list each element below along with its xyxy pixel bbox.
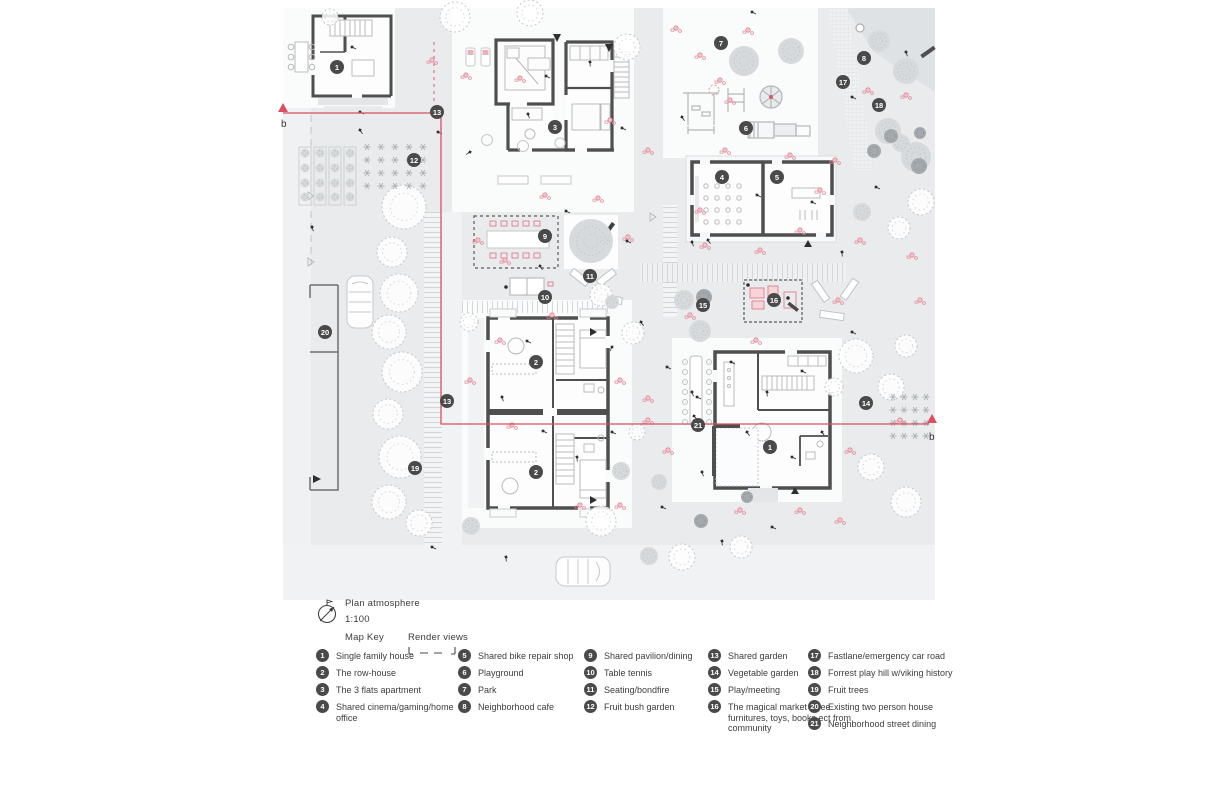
- svg-text:9: 9: [543, 232, 547, 241]
- plan-title: Plan atmosphere: [345, 598, 420, 609]
- svg-text:14: 14: [862, 399, 871, 408]
- plan-marker: 7: [714, 36, 728, 50]
- legend-item-label: Shared bike repair shop: [478, 649, 574, 662]
- legend-item: 1Single family house: [316, 649, 462, 662]
- svg-text:13: 13: [433, 108, 441, 117]
- render-views-label: Render views: [408, 632, 468, 643]
- legend-item: 9Shared pavilion/dining: [584, 649, 693, 662]
- legend-item-label: Fruit bush garden: [604, 700, 675, 713]
- legend-item: 7Park: [458, 683, 574, 696]
- plan-marker: 2: [529, 465, 543, 479]
- plan-marker: 21: [691, 418, 705, 432]
- legend-item-number: 12: [584, 700, 597, 713]
- plan-marker: 2: [529, 355, 543, 369]
- plan-marker: 1: [330, 60, 344, 74]
- legend-item-number: 16: [708, 700, 721, 713]
- legend-column: 9Shared pavilion/dining10Table tennis11S…: [584, 649, 693, 717]
- site-plan-sheet: b b 137817186451213911101516202213141921…: [0, 0, 1228, 780]
- building-cinema-bike: [686, 156, 836, 247]
- legend-item: 6Playground: [458, 666, 574, 679]
- plan-marker: 14: [859, 396, 873, 410]
- legend-column: 17Fastlane/emergency car road18Forrest p…: [808, 649, 953, 734]
- parked-car: [347, 276, 373, 328]
- legend-item-label: Park: [478, 683, 497, 696]
- legend-item-number: 2: [316, 666, 329, 679]
- plan-marker: 19: [408, 461, 422, 475]
- legend-column: 1Single family house2The row-house3The 3…: [316, 649, 462, 727]
- legend-item-label: Forrest play hill w/viking history: [828, 666, 953, 679]
- legend-item-number: 8: [458, 700, 471, 713]
- legend-item: 12Fruit bush garden: [584, 700, 693, 713]
- plan-marker: 8: [857, 51, 871, 65]
- building-rowhouse: [468, 309, 611, 517]
- section-label-right: b: [929, 432, 935, 443]
- legend-item-number: 9: [584, 649, 597, 662]
- plan-marker: 16: [767, 293, 781, 307]
- plan-marker: 10: [538, 290, 552, 304]
- svg-text:2: 2: [534, 468, 538, 477]
- plan-marker: 4: [715, 170, 729, 184]
- plan-marker: 5: [770, 170, 784, 184]
- legend-item: 11Seating/bondfire: [584, 683, 693, 696]
- legend-item-label: The row-house: [336, 666, 396, 679]
- legend-item-label: Neighborhood cafe: [478, 700, 554, 713]
- plan-marker: 13: [440, 394, 454, 408]
- legend-column: 5Shared bike repair shop6Playground7Park…: [458, 649, 574, 717]
- legend-item-number: 14: [708, 666, 721, 679]
- legend-item: 10Table tennis: [584, 666, 693, 679]
- legend-item-label: Shared cinema/gaming/home office: [336, 700, 462, 723]
- legend-item-number: 20: [808, 700, 821, 713]
- svg-text:12: 12: [410, 156, 418, 165]
- svg-text:8: 8: [862, 54, 866, 63]
- legend-item-label: Single family house: [336, 649, 414, 662]
- legend-item-label: Seating/bondfire: [604, 683, 670, 696]
- plan-marker: 9: [538, 229, 552, 243]
- legend-item-number: 1: [316, 649, 329, 662]
- legend-item-number: 15: [708, 683, 721, 696]
- plan-marker: 6: [739, 121, 753, 135]
- legend-item-number: 11: [584, 683, 597, 696]
- plan-scale: 1:100: [345, 614, 370, 625]
- svg-text:20: 20: [321, 328, 329, 337]
- legend-item-number: 7: [458, 683, 471, 696]
- plan-marker: 17: [836, 75, 850, 89]
- svg-text:7: 7: [719, 39, 723, 48]
- svg-text:15: 15: [699, 301, 707, 310]
- legend-item-number: 21: [808, 717, 821, 730]
- plan-marker: 13: [430, 105, 444, 119]
- legend-item-label: Fruit trees: [828, 683, 869, 696]
- svg-text:3: 3: [553, 123, 557, 132]
- legend-item-label: Vegetable garden: [728, 666, 799, 679]
- svg-text:2: 2: [534, 358, 538, 367]
- plan-marker: 11: [583, 269, 597, 283]
- legend-item-number: 18: [808, 666, 821, 679]
- legend-item: 5Shared bike repair shop: [458, 649, 574, 662]
- plan-marker: 12: [407, 153, 421, 167]
- svg-text:11: 11: [586, 272, 594, 281]
- legend-item: 3The 3 flats apartment: [316, 683, 462, 696]
- legend-item: 18Forrest play hill w/viking history: [808, 666, 953, 679]
- legend-item: 2The row-house: [316, 666, 462, 679]
- svg-text:19: 19: [411, 464, 419, 473]
- legend-item: 8Neighborhood cafe: [458, 700, 574, 713]
- svg-text:17: 17: [839, 78, 847, 87]
- legend-item-number: 19: [808, 683, 821, 696]
- legend-item-label: Neighborhood street dining: [828, 717, 936, 730]
- section-label-left: b: [281, 119, 287, 130]
- legend-item-number: 10: [584, 666, 597, 679]
- legend-item-label: The 3 flats apartment: [336, 683, 421, 696]
- legend-item: 19Fruit trees: [808, 683, 953, 696]
- legend-item-number: 3: [316, 683, 329, 696]
- legend-item-label: Shared garden: [728, 649, 788, 662]
- legend-item-number: 6: [458, 666, 471, 679]
- svg-text:10: 10: [541, 293, 549, 302]
- plan-marker: 3: [548, 120, 562, 134]
- map-key-label: Map Key: [345, 632, 384, 643]
- svg-text:5: 5: [775, 173, 779, 182]
- plan-marker: 15: [696, 298, 710, 312]
- legend-item: 17Fastlane/emergency car road: [808, 649, 953, 662]
- legend-item-label: Play/meeting: [728, 683, 780, 696]
- legend-item-label: Existing two person house: [828, 700, 933, 713]
- svg-text:1: 1: [335, 63, 339, 72]
- street-car: [556, 557, 610, 586]
- legend-item: 21Neighborhood street dining: [808, 717, 953, 730]
- legend-item-label: Shared pavilion/dining: [604, 649, 693, 662]
- legend-item-label: Table tennis: [604, 666, 652, 679]
- legend-item-number: 13: [708, 649, 721, 662]
- plan-marker: 18: [872, 98, 886, 112]
- svg-text:13: 13: [443, 397, 451, 406]
- north-compass-icon: [314, 594, 344, 630]
- legend-item-label: Fastlane/emergency car road: [828, 649, 945, 662]
- legend-item: 4Shared cinema/gaming/home office: [316, 700, 462, 723]
- legend-item-number: 4: [316, 700, 329, 713]
- svg-text:21: 21: [694, 421, 702, 430]
- plan-marker: 20: [318, 325, 332, 339]
- legend-item-number: 17: [808, 649, 821, 662]
- legend-item-number: 5: [458, 649, 471, 662]
- svg-text:1: 1: [768, 443, 772, 452]
- plan-marker: 1: [763, 440, 777, 454]
- svg-text:16: 16: [770, 296, 778, 305]
- svg-text:6: 6: [744, 124, 748, 133]
- svg-text:18: 18: [875, 101, 883, 110]
- legend-item: 20Existing two person house: [808, 700, 953, 713]
- legend-item-label: Playground: [478, 666, 524, 679]
